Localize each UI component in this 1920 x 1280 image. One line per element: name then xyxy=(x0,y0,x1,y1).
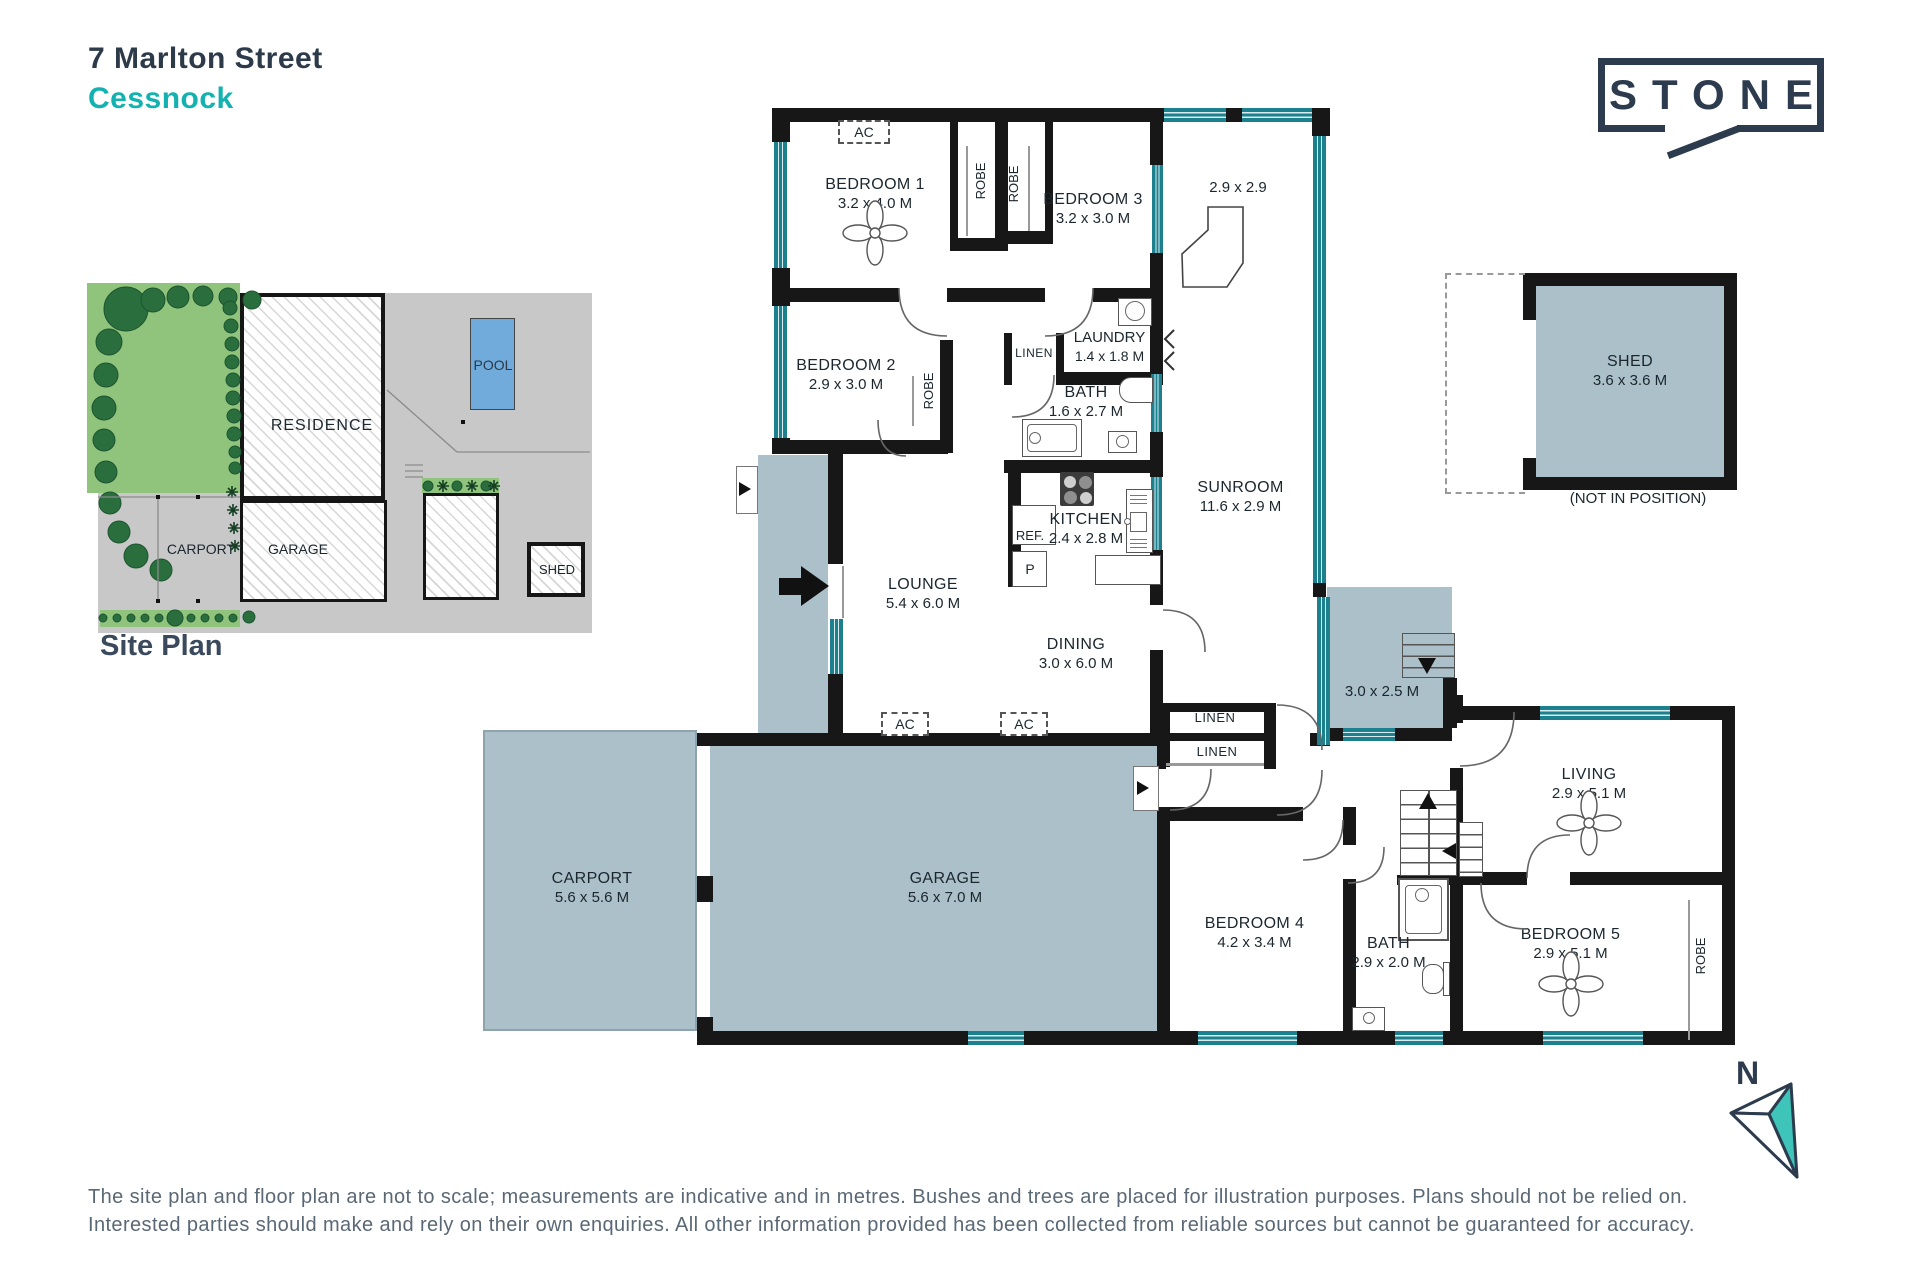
site-plan-title: Site Plan xyxy=(100,630,223,663)
site-label-garage: GARAGE xyxy=(228,541,368,559)
robe-rail-1 xyxy=(966,146,968,236)
site-residence xyxy=(240,293,385,500)
disclaimer-line-1: The site plan and floor plan are not to … xyxy=(88,1186,1838,1209)
floor-plan-page: 7 Marlton Street Cessnock STONE RESIDENC… xyxy=(0,0,1920,1280)
label-bar: BAR xyxy=(1182,250,1242,269)
ac-box-2: AC xyxy=(881,712,929,736)
room-label-bedroom3: BEDROOM 33.2 x 3.0 M xyxy=(1013,190,1173,229)
room-label-bath2: BATH2.9 x 2.0 M xyxy=(1316,934,1461,973)
label-linen-laundry: LINEN xyxy=(1008,346,1060,361)
vanity-bowl-bath1 xyxy=(1116,435,1129,448)
vector-overlay: N xyxy=(0,0,1920,1280)
stairs-side xyxy=(1459,822,1483,877)
stone-logo-text: STONE xyxy=(1594,71,1828,119)
cooktop-icon xyxy=(1060,472,1094,506)
label-robe-bed5: ROBE xyxy=(1693,926,1709,986)
site-lawn xyxy=(87,283,240,493)
stairs-left-arrow-icon xyxy=(1442,843,1456,859)
page-subtitle: Cessnock xyxy=(88,82,234,116)
ac-box-1: AC xyxy=(838,120,890,144)
front-step-arrow-icon xyxy=(739,482,751,496)
room-label-bedroom5: BEDROOM 52.9 x 5.1 M xyxy=(1488,925,1653,964)
label-robe-2: ROBE xyxy=(1006,154,1022,214)
shed-dashed-outline xyxy=(1445,273,1525,494)
bar-counter xyxy=(1182,207,1243,287)
label-robe-1: ROBE xyxy=(973,151,989,211)
robe-rail-bed5 xyxy=(1688,900,1690,1040)
entry-arrow-head xyxy=(801,566,829,606)
entry-arrow-icon xyxy=(779,578,801,595)
label-bar-room-dims: 2.9 x 2.9 xyxy=(1178,179,1298,198)
site-hedge xyxy=(422,478,499,493)
site-label-pool: POOL xyxy=(453,357,533,375)
label-robe-bed2: ROBE xyxy=(921,361,937,421)
room-label-bedroom2: BEDROOM 22.9 x 3.0 M xyxy=(766,356,926,395)
room-label-bedroom4: BEDROOM 44.2 x 3.4 M xyxy=(1172,914,1337,953)
north-arrow-label: N xyxy=(1736,1055,1759,1091)
site-label-residence: RESIDENCE xyxy=(242,416,402,436)
shed-label: SHED3.6 x 3.6 M xyxy=(1550,352,1710,391)
deck-down-arrow-icon xyxy=(1418,658,1436,674)
room-label-bedroom1: BEDROOM 13.2 x 4.0 M xyxy=(795,175,955,214)
room-label-lounge: LOUNGE5.4 x 6.0 M xyxy=(843,575,1003,614)
label-linen-1: LINEN xyxy=(1167,710,1263,726)
room-label-garage: GARAGE5.6 x 7.0 M xyxy=(860,869,1030,908)
site-label-shed: SHED xyxy=(517,562,597,578)
label-linen-2: LINEN xyxy=(1172,744,1262,760)
stone-logo: STONE xyxy=(1598,58,1824,132)
garage-door-arrow-icon xyxy=(1137,781,1149,795)
ac-box-3: AC xyxy=(1000,712,1048,736)
disclaimer-line-2: Interested parties should make and rely … xyxy=(88,1214,1838,1237)
label-ref: REF. xyxy=(1006,528,1054,544)
vanity-bowl-bath2 xyxy=(1363,1012,1375,1024)
room-label-carport: CARPORT5.6 x 5.6 M xyxy=(512,869,672,908)
room-label-dining: DINING3.0 x 6.0 M xyxy=(996,635,1156,674)
room-label-sunroom: SUNROOM11.6 x 2.9 M xyxy=(1163,478,1318,517)
shed-note: (NOT IN POSITION) xyxy=(1528,490,1748,509)
kitchen-bench-2 xyxy=(1095,555,1161,585)
page-title: 7 Marlton Street xyxy=(88,42,323,76)
room-label-bath1: BATH1.6 x 2.7 M xyxy=(1016,383,1156,422)
site-wing xyxy=(423,493,499,600)
bath1-tap xyxy=(1029,432,1041,444)
room-label-living: LIVING2.9 x 5.1 M xyxy=(1509,765,1669,804)
site-lawn-strip xyxy=(100,610,240,627)
label-deck-dims: 3.0 x 2.5 M xyxy=(1321,683,1443,702)
label-pantry: P xyxy=(1016,561,1044,579)
stairs-up-arrow-icon xyxy=(1419,793,1437,809)
laundry-tub-bowl xyxy=(1125,301,1145,321)
north-arrow-icon xyxy=(1731,1084,1797,1177)
shower-head xyxy=(1415,888,1429,902)
